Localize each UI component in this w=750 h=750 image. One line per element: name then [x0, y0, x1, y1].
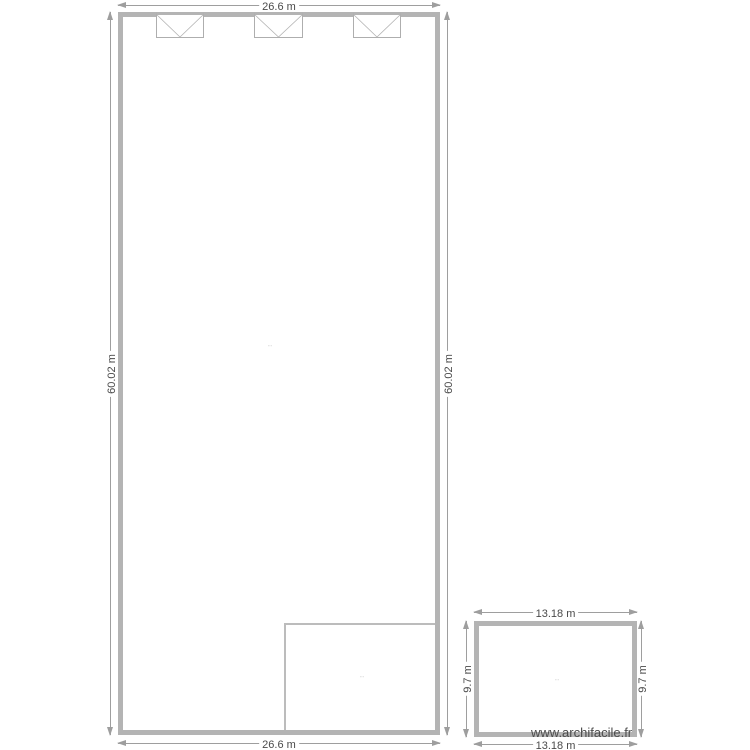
arrow-up-icon — [444, 11, 450, 20]
arrow-right-icon — [629, 609, 638, 615]
dimension-label[interactable]: 13.18 m — [533, 608, 579, 620]
arrow-right-icon — [629, 741, 638, 747]
window-symbol-3[interactable] — [353, 12, 401, 38]
dimension-main-bottom: 26.6 m — [118, 743, 440, 744]
dimension-annex-left: 9.7 m — [466, 621, 467, 737]
dimension-label[interactable]: 13.18 m — [533, 740, 579, 750]
window-v-icon — [157, 15, 203, 37]
room-area-label: ··· — [555, 679, 560, 684]
dimension-main-left: 60.02 m — [110, 12, 111, 735]
dimension-label[interactable]: 60.02 m — [106, 351, 118, 397]
window-v-icon — [255, 15, 302, 37]
dimension-label[interactable]: 26.6 m — [259, 1, 299, 13]
arrow-left-icon — [473, 609, 482, 615]
room-area-label: ··· — [268, 345, 273, 350]
arrow-left-icon — [117, 740, 126, 746]
arrow-down-icon — [444, 727, 450, 736]
dimension-label[interactable]: 60.02 m — [443, 351, 455, 397]
floorplan-canvas: 26.6 m 26.6 m 60.02 m 60.02 m 13.18 m 13… — [0, 0, 750, 750]
arrow-up-icon — [638, 620, 644, 629]
window-symbol-1[interactable] — [156, 12, 204, 38]
window-v-icon — [354, 15, 400, 37]
watermark: www.archifacile.fr — [531, 725, 632, 740]
dimension-main-top: 26.6 m — [118, 5, 440, 6]
dimension-main-right: 60.02 m — [447, 12, 448, 735]
dimension-annex-top: 13.18 m — [474, 612, 637, 613]
arrow-up-icon — [107, 11, 113, 20]
dimension-annex-bottom: 13.18 m — [474, 744, 637, 745]
room-area-label: ··· — [360, 676, 365, 681]
dimension-annex-right: 9.7 m — [641, 621, 642, 737]
arrow-right-icon — [432, 2, 441, 8]
arrow-down-icon — [638, 729, 644, 738]
arrow-left-icon — [473, 741, 482, 747]
arrow-right-icon — [432, 740, 441, 746]
dimension-label[interactable]: 9.7 m — [637, 662, 649, 696]
arrow-down-icon — [463, 729, 469, 738]
arrow-left-icon — [117, 2, 126, 8]
dimension-label[interactable]: 9.7 m — [462, 662, 474, 696]
arrow-down-icon — [107, 727, 113, 736]
dimension-label[interactable]: 26.6 m — [259, 739, 299, 750]
window-symbol-2[interactable] — [254, 12, 303, 38]
arrow-up-icon — [463, 620, 469, 629]
